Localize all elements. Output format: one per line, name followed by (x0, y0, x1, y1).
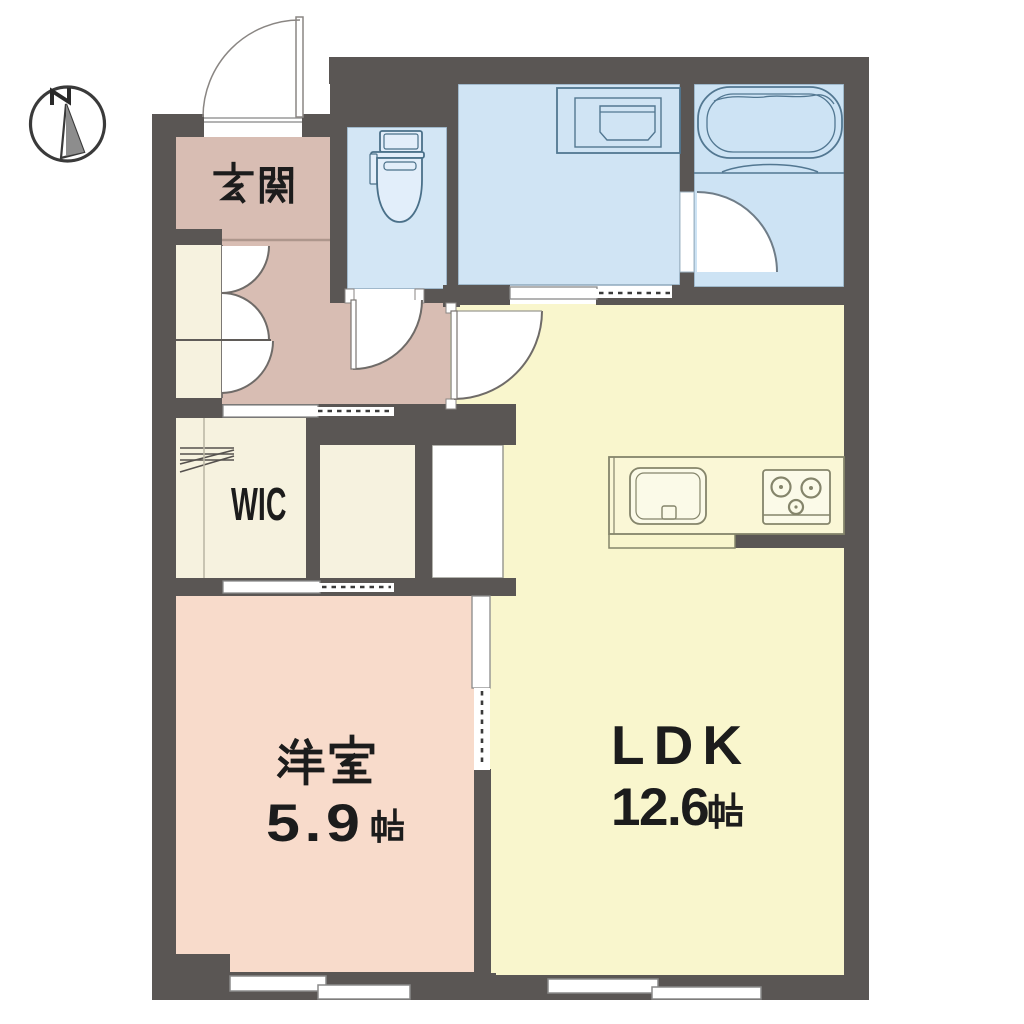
svg-text:12.6: 12.6 (611, 778, 708, 837)
svg-text:5.9: 5.9 (266, 794, 365, 853)
svg-text:WIC: WIC (231, 479, 286, 531)
svg-text:LDK: LDK (611, 714, 751, 776)
